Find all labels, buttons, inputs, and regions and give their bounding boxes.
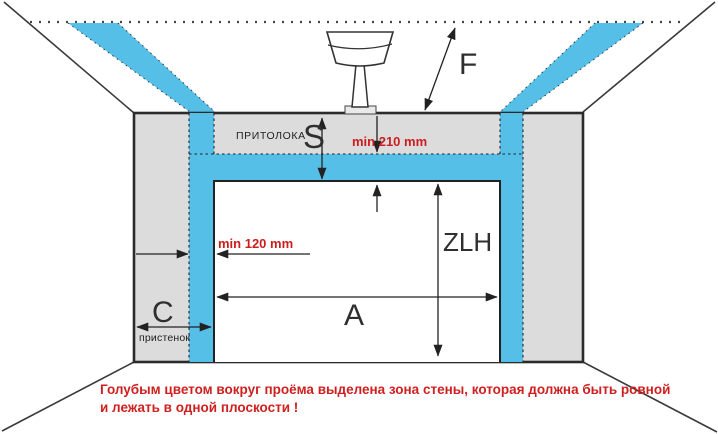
f-dimension-arrow bbox=[425, 28, 455, 110]
diagram-drawing bbox=[0, 0, 718, 434]
bottom-note-line1: Голубым цветом вокруг проёма выделена зо… bbox=[100, 381, 670, 399]
lintel-caption: ПРИТОЛОКА bbox=[236, 130, 306, 142]
headroom-dim-letter: F bbox=[459, 48, 477, 82]
ceiling-lamp-icon bbox=[327, 32, 393, 114]
perspective-line-top-left bbox=[4, 2, 134, 113]
lamp-stem bbox=[352, 64, 368, 107]
garage-door-dimensions-diagram: ПРИТОЛОКА S min 210 mm F ZLH A min 120 m… bbox=[0, 0, 718, 434]
min-top-zone-value: min 210 mm bbox=[352, 134, 427, 149]
bottom-note: Голубым цветом вокруг проёма выделена зо… bbox=[100, 381, 670, 417]
pier-dim-letter: C bbox=[152, 296, 174, 330]
opening-width-dim-letter: A bbox=[344, 299, 364, 333]
lintel-dim-letter: S bbox=[303, 118, 325, 156]
min-side-zone-value: min 120 mm bbox=[218, 236, 293, 251]
ceiling-blue-stripe-right bbox=[500, 23, 643, 112]
bottom-note-line2: и лежать в одной плоскости ! bbox=[100, 399, 670, 417]
blue-zone-right-leg bbox=[500, 113, 523, 362]
blue-zone-top-band bbox=[189, 154, 523, 181]
perspective-line-top-right bbox=[583, 2, 715, 112]
opening-height-dim-letter: ZLH bbox=[443, 227, 492, 258]
door-opening bbox=[214, 181, 500, 362]
blue-zone-left-leg bbox=[189, 113, 214, 362]
pier-caption: пристенок bbox=[139, 332, 190, 344]
ceiling-blue-stripe-left bbox=[68, 23, 215, 112]
